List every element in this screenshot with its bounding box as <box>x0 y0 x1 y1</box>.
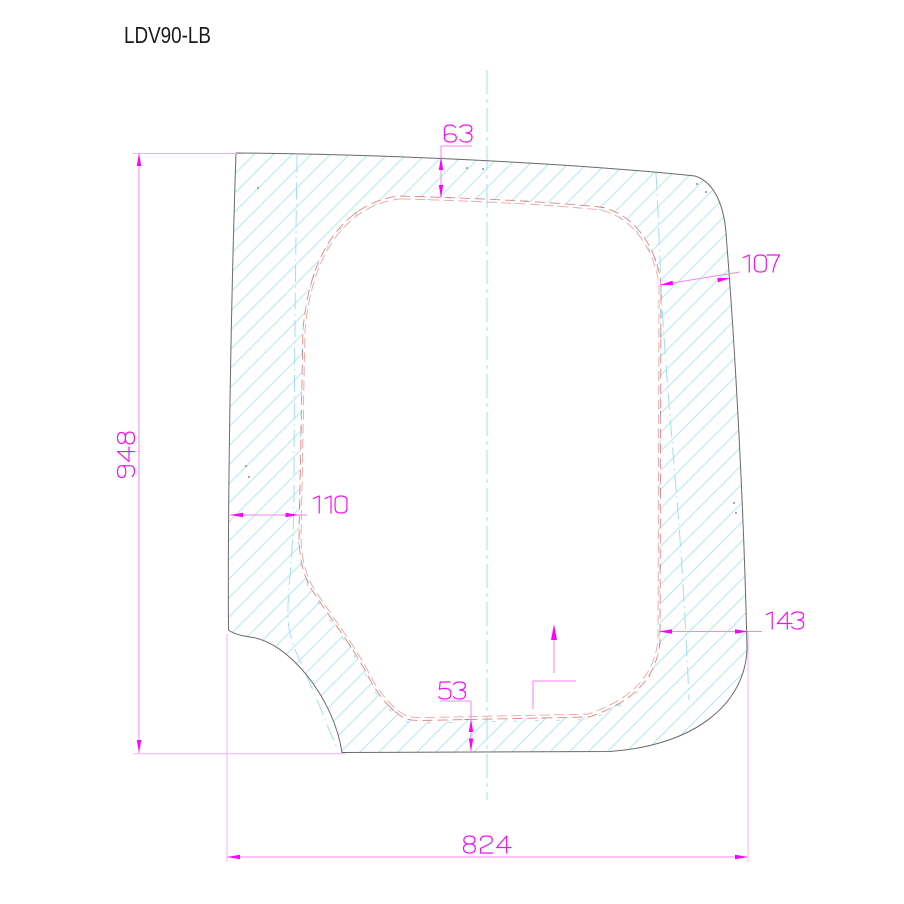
svg-text:LDV90-LB: LDV90-LB <box>124 22 211 48</box>
